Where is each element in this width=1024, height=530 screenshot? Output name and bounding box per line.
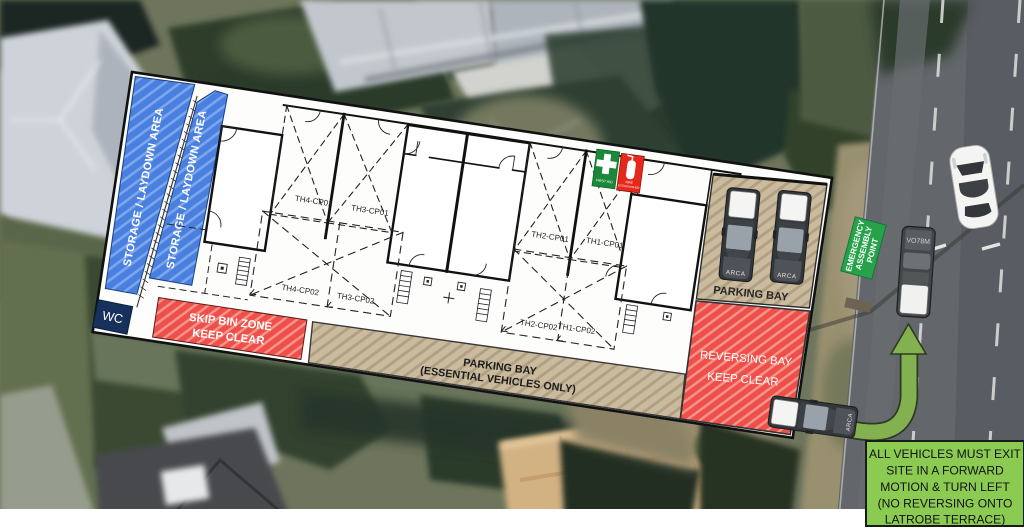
svg-text:MOTION & TURN LEFT: MOTION & TURN LEFT <box>880 480 1010 494</box>
svg-text:SITE IN A FORWARD: SITE IN A FORWARD <box>886 464 1004 478</box>
svg-text:ALL VEHICLES MUST EXIT: ALL VEHICLES MUST EXIT <box>869 447 1022 461</box>
svg-text:LATROBE TERRACE): LATROBE TERRACE) <box>885 513 1006 527</box>
svg-text:(NO REVERSING ONTO: (NO REVERSING ONTO <box>878 497 1013 511</box>
